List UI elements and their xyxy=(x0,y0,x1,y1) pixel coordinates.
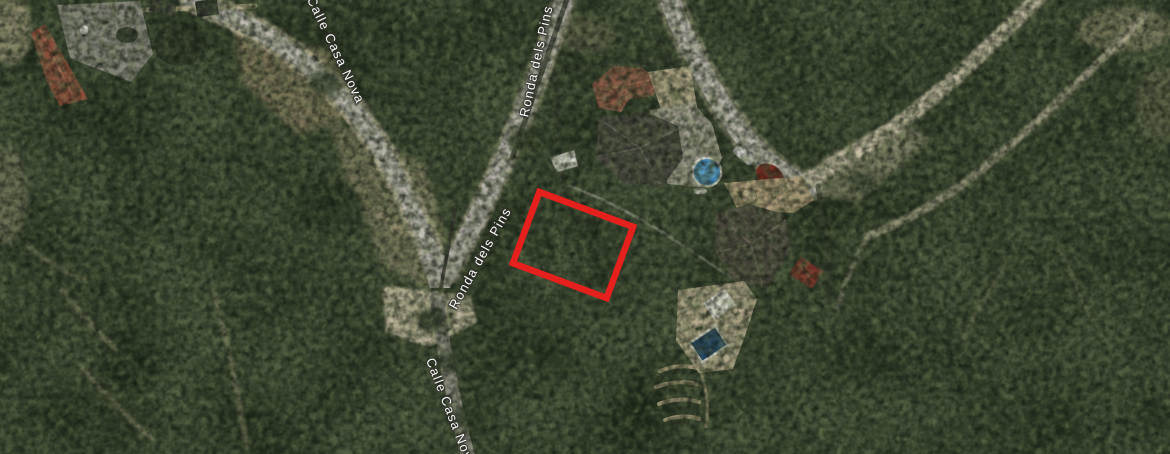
map-canvas xyxy=(0,0,1170,454)
satellite-map-view[interactable]: Calle Casa Nova Ronda dels Pins Ronda de… xyxy=(0,0,1170,454)
foliage-noise-overlay xyxy=(0,0,1170,454)
